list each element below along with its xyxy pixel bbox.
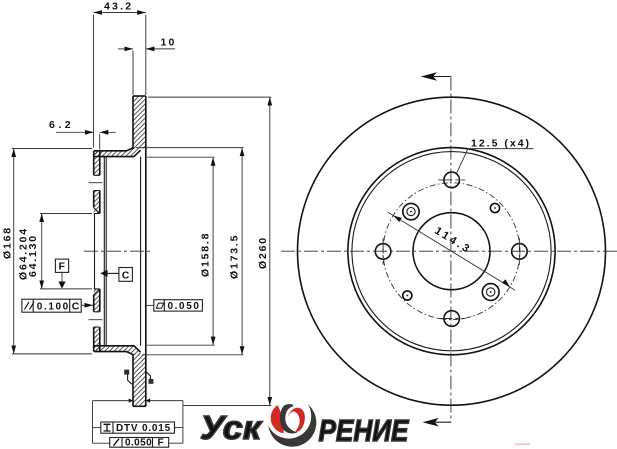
svg-text:10: 10 xyxy=(161,37,177,49)
svg-text:12.5 (x4): 12.5 (x4) xyxy=(471,138,531,150)
svg-text:DTV 0.015: DTV 0.015 xyxy=(116,423,171,434)
svg-text:F: F xyxy=(158,438,164,449)
svg-text:0.100: 0.100 xyxy=(37,302,70,313)
svg-text:Ø168: Ø168 xyxy=(2,226,14,259)
svg-text:Ø260: Ø260 xyxy=(257,236,269,269)
svg-text:Ø158.8: Ø158.8 xyxy=(200,232,212,277)
svg-text:F: F xyxy=(59,261,68,273)
svg-text:0.050: 0.050 xyxy=(125,438,152,449)
svg-text:43.2: 43.2 xyxy=(104,1,133,13)
svg-text:C: C xyxy=(122,269,132,281)
svg-text:0.050: 0.050 xyxy=(168,301,201,312)
svg-text:64.130: 64.130 xyxy=(27,234,39,277)
svg-text:Уск: Уск xyxy=(200,409,263,446)
svg-text:6.2: 6.2 xyxy=(49,119,74,131)
svg-text:C: C xyxy=(72,301,82,313)
svg-text:Ø173.5: Ø173.5 xyxy=(229,234,241,279)
svg-text:РЕНИЕ: РЕНИЕ xyxy=(319,414,410,448)
